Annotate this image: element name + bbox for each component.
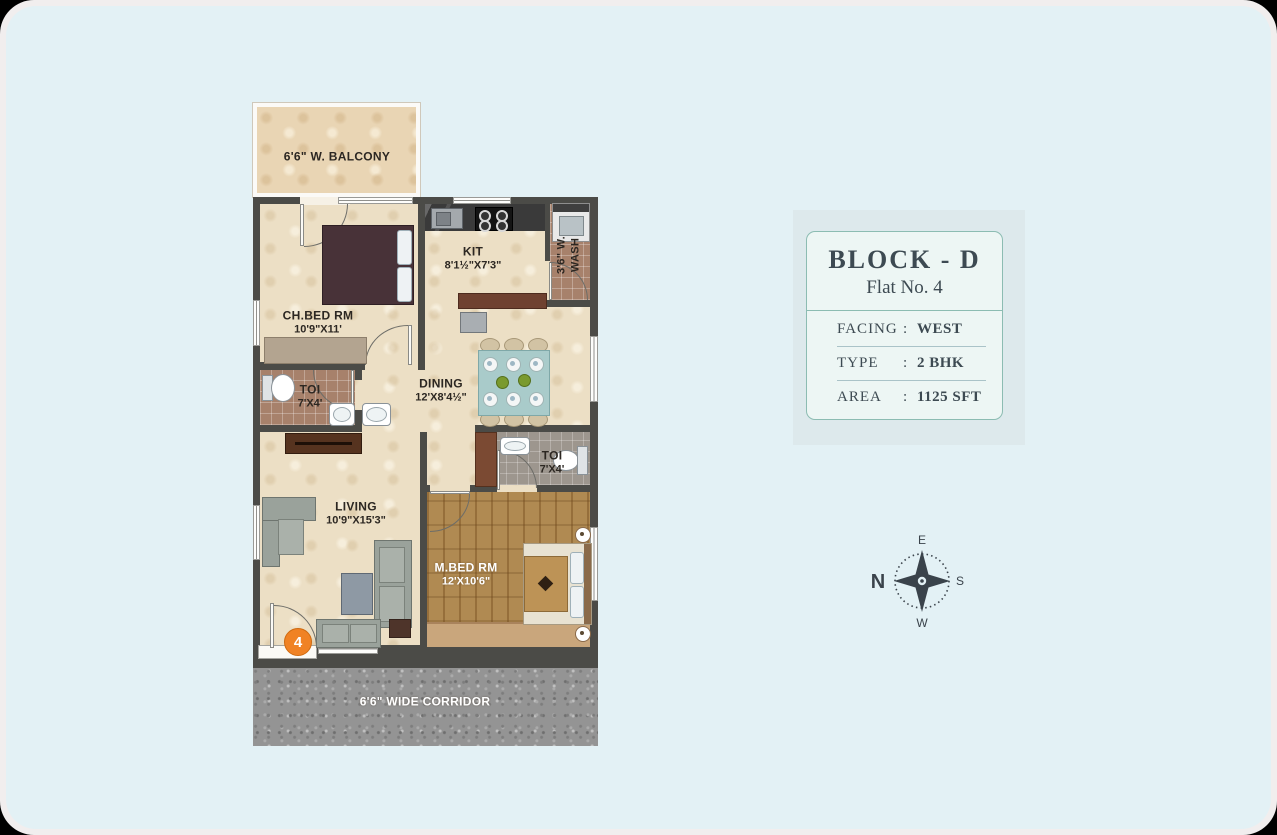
floor-plan: 6'6" W. BALCONY — [253, 103, 598, 746]
chbed-dims: 10'9"X11' — [283, 324, 354, 338]
toilet1-label: TOI 7'X4' — [298, 383, 323, 412]
toilet2-label: TOI 7'X4' — [540, 449, 565, 478]
wall-toilet1-right-top — [355, 370, 362, 380]
mbed-dims: 12'X10'6" — [434, 576, 497, 590]
balcony-label: 6'6" W. BALCONY — [284, 150, 390, 165]
stove-burner — [479, 220, 491, 232]
compass-rose: N E S W — [862, 531, 980, 633]
washing-machine-door — [559, 216, 584, 236]
type-value: 2 BHK — [917, 355, 986, 372]
corridor-name: 6'6" WIDE CORRIDOR — [360, 695, 491, 710]
sofa-cushion — [350, 624, 377, 643]
kitchen-label: KIT 8'1½"X7'3" — [445, 245, 502, 274]
mbed-blanket-pattern — [538, 576, 554, 592]
toilet1-name: TOI — [298, 383, 323, 398]
toilet1-bowl — [271, 374, 295, 402]
compass-icon: N E S W — [862, 531, 980, 633]
card-rows: FACING : WEST TYPE : 2 BHK AREA : 1125 S… — [807, 311, 1002, 414]
living-sofa-right — [374, 540, 412, 628]
toilet1-dims: 7'X4' — [298, 398, 323, 412]
living-name: LIVING — [326, 500, 386, 515]
dining-dims: 12'X8'4½" — [415, 392, 466, 406]
facing-label: FACING — [837, 321, 903, 338]
block-title: BLOCK - D — [807, 245, 1002, 275]
floor-plan-page: 6'6" W. BALCONY — [0, 0, 1277, 835]
mbed-label: M.BED RM 12'X10'6" — [434, 561, 497, 590]
living-label: LIVING 10'9"X15'3" — [326, 500, 386, 529]
kitchen-name: KIT — [445, 245, 502, 260]
dining-plate — [483, 357, 498, 372]
dining-plate — [506, 357, 521, 372]
area-colon: : — [903, 389, 917, 406]
window-kitchen-top — [453, 197, 511, 204]
wall-living-mbed — [420, 432, 427, 645]
type-label: TYPE — [837, 355, 903, 372]
toilet2-dims: 7'X4' — [540, 464, 565, 478]
info-card: BLOCK - D Flat No. 4 FACING : WEST TYPE … — [806, 231, 1003, 420]
facing-colon: : — [903, 321, 917, 338]
window-bedroom-balcony — [338, 197, 413, 204]
dining-plate — [506, 392, 521, 407]
chbed-pillow-1 — [397, 230, 412, 265]
wall-mbed-top-c — [537, 485, 590, 492]
chbed-name: CH.BED RM — [283, 309, 354, 324]
bedroom-door-leaf — [408, 325, 412, 365]
dining-plate — [529, 357, 544, 372]
wash-line2: WASH — [569, 236, 583, 274]
chbed-pillow-2 — [397, 267, 412, 302]
toilet2-wardrobe — [475, 432, 497, 487]
fridge — [460, 312, 487, 333]
mbed-pillow-2 — [570, 586, 584, 618]
toilet2-basin — [500, 437, 530, 455]
page-background — [6, 6, 1271, 829]
window-living-left — [253, 505, 260, 560]
compass-west: W — [916, 616, 928, 630]
sofa-cushion — [322, 624, 349, 643]
wash-line1: 3'6" W. — [555, 236, 569, 274]
living-corner-sofa-arm — [262, 497, 316, 521]
toilet2-tank — [577, 446, 588, 475]
washbasin-1 — [329, 403, 355, 426]
mbed-lamp-2 — [575, 626, 591, 642]
kitchen-sink-basin — [436, 212, 451, 226]
stove-burner — [496, 220, 508, 232]
mbed-name: M.BED RM — [434, 561, 497, 576]
compass-hub-dot — [920, 579, 924, 583]
facing-row: FACING : WEST — [837, 313, 986, 347]
wash-label: 3'6" W. WASH — [555, 236, 583, 274]
mbed-lamp-1 — [575, 527, 591, 543]
coffee-table — [341, 573, 373, 615]
sofa-cushion — [379, 586, 405, 622]
balcony-name: 6'6" W. BALCONY — [284, 150, 390, 165]
chbed-label: CH.BED RM 10'9"X11' — [283, 309, 354, 338]
unit-number-badge: 4 — [284, 628, 312, 656]
living-corner-sofa-seat — [278, 519, 304, 555]
corridor-label: 6'6" WIDE CORRIDOR — [360, 695, 491, 710]
chbed-wardrobe — [264, 337, 367, 364]
mbed-blanket — [524, 556, 568, 612]
type-colon: : — [903, 355, 917, 372]
window-dining-right — [590, 336, 598, 402]
kitchen-counter-lower — [458, 293, 547, 309]
tv-cabinet — [285, 433, 362, 454]
unit-number: 4 — [294, 634, 302, 651]
wall-toilet1-bottom — [253, 425, 362, 432]
mbed-headboard — [584, 544, 591, 624]
dining-name: DINING — [415, 377, 466, 392]
dining-plate — [529, 392, 544, 407]
living-dims: 10'9"X15'3" — [326, 515, 386, 529]
kitchen-sink — [431, 208, 463, 229]
living-sofa-bottom — [316, 619, 381, 648]
facing-value: WEST — [917, 321, 986, 338]
window-bedroom-left — [253, 300, 260, 346]
kitchen-dims: 8'1½"X7'3" — [445, 260, 502, 274]
area-row: AREA : 1125 SFT — [837, 381, 986, 414]
area-label: AREA — [837, 389, 903, 406]
toilet2-name: TOI — [540, 449, 565, 464]
washbasin-2 — [362, 403, 391, 426]
kitchen-stove — [475, 207, 513, 231]
dining-dish — [518, 374, 531, 387]
type-row: TYPE : 2 BHK — [837, 347, 986, 381]
compass-south: S — [956, 574, 964, 588]
compass-east: E — [918, 533, 926, 547]
sofa-cushion — [379, 547, 405, 583]
compass-north: N — [871, 571, 885, 593]
dining-plate — [483, 392, 498, 407]
wall-kitchen-wash — [545, 197, 550, 261]
side-table — [389, 619, 411, 638]
flat-number: Flat No. 4 — [807, 277, 1002, 299]
dining-dish — [496, 376, 509, 389]
dining-label: DINING 12'X8'4½" — [415, 377, 466, 406]
dining-set — [478, 350, 548, 414]
wall-bedroom-kitchen — [418, 204, 425, 370]
mbed-pillow-1 — [570, 552, 584, 584]
mbed-bed — [523, 543, 592, 625]
master-bedroom-rug — [427, 622, 590, 647]
area-value: 1125 SFT — [917, 389, 986, 406]
wall-below-wash — [545, 300, 597, 307]
washing-machine-top — [553, 204, 589, 212]
